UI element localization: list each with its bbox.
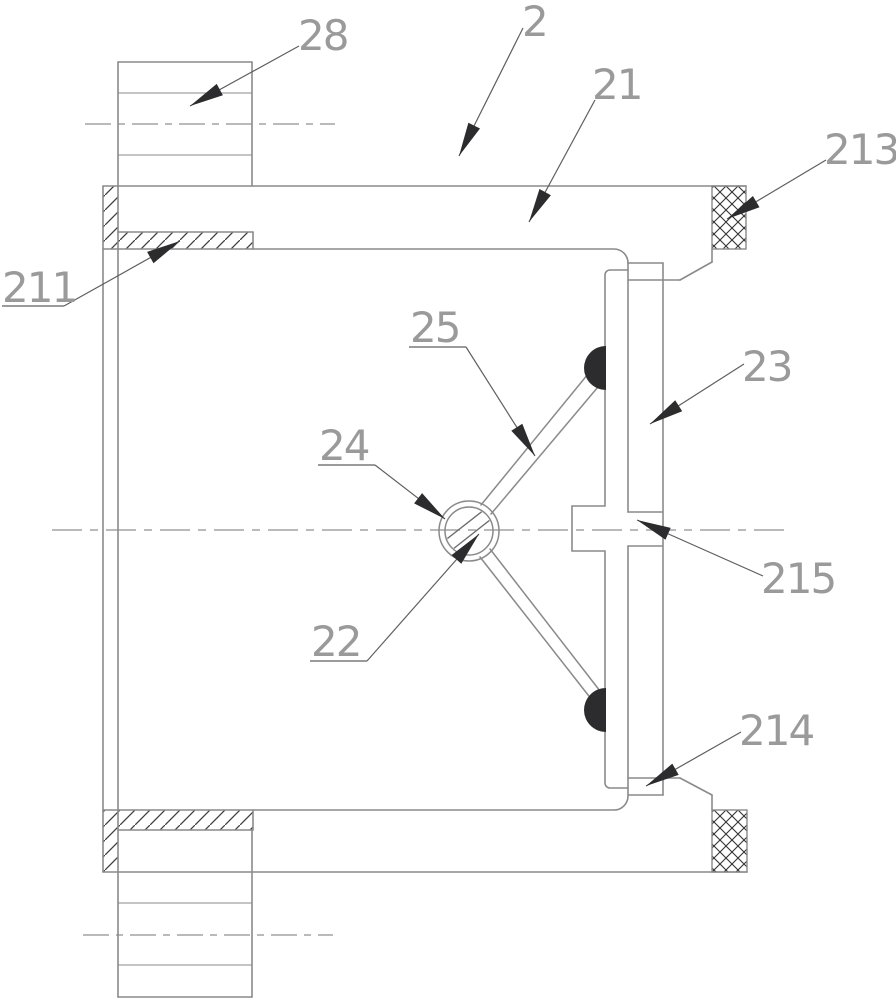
- bottom-step-slant: [680, 778, 712, 795]
- arrowhead-22: [452, 534, 480, 564]
- seal-blocks: [712, 186, 747, 872]
- strut-lower-edge-a: [480, 557, 592, 700]
- top-arm-bottom-edge: [103, 249, 628, 263]
- figure-canvas: 2 21 213 28 211 25 24 22 23 215 214: [0, 0, 896, 1000]
- strut-upper-edge-b: [481, 363, 597, 505]
- ref-label-23: 23: [742, 342, 791, 391]
- ref-label-25: 25: [410, 303, 459, 352]
- ref-label-24: 24: [319, 421, 369, 470]
- top-step-slant: [680, 262, 712, 280]
- seal-214-block: [712, 810, 747, 872]
- arrowhead-23: [650, 400, 682, 424]
- arrowhead-215: [637, 520, 671, 540]
- ref-label-21: 21: [592, 60, 641, 109]
- strut-upper-edge-a: [491, 381, 603, 514]
- bottom-arm-top-edge: [103, 796, 628, 810]
- leader-lines: [2, 28, 826, 786]
- ref-label-214: 214: [739, 706, 813, 755]
- hinge-outer-ring: [439, 501, 499, 561]
- arrowhead-24: [414, 493, 445, 519]
- ref-label-22: 22: [311, 617, 360, 666]
- arrowhead-28: [190, 84, 223, 106]
- ref-label-211: 211: [2, 263, 76, 312]
- arrowhead-25: [511, 424, 535, 456]
- ref-label-215: 215: [761, 554, 835, 603]
- hatch-regions: [103, 186, 253, 872]
- patent-drawing-svg: 2 21 213 28 211 25 24 22 23 215 214: [0, 0, 896, 1000]
- strut-lower-edge-b: [490, 549, 600, 691]
- arrowhead-21: [529, 189, 551, 222]
- pivot-ball-top: [584, 346, 606, 390]
- reference-labels: 2 21 213 28 211 25 24 22 23 215 214: [2, 0, 896, 755]
- arrowheads: [147, 84, 759, 786]
- ref-label-2: 2: [522, 0, 547, 46]
- ref-label-28: 28: [298, 11, 347, 60]
- hinge-joint: [439, 501, 499, 561]
- hatch-bottom-L: [103, 810, 253, 872]
- arrowhead-2: [459, 123, 480, 156]
- ref-label-213: 213: [824, 125, 896, 174]
- hatch-top-L: [103, 186, 253, 249]
